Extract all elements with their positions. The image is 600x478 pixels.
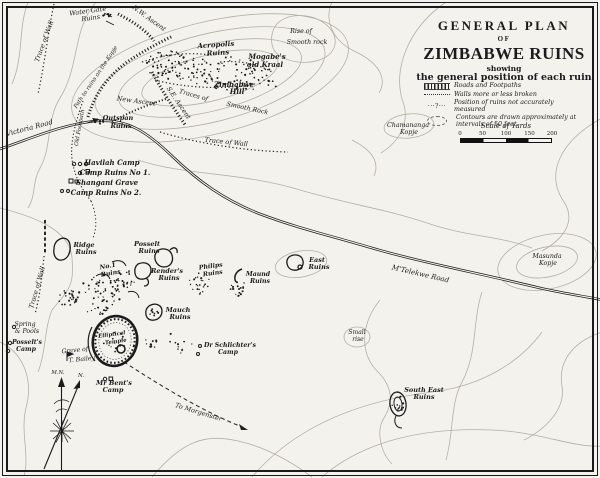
- map-label: Path to ruins on the Kopje: [72, 45, 119, 111]
- map-label: rise: [352, 336, 364, 343]
- map-label: Smooth Rock: [226, 101, 269, 117]
- map-label: Posselt's: [11, 339, 43, 346]
- compass-rose: [44, 377, 80, 470]
- map-label: Camp: [103, 386, 124, 394]
- mauch-ruins-shape: [146, 304, 162, 320]
- map-labels: Water GateRuinsN.W. AscentTrace of WallP…: [5, 3, 562, 423]
- map-label: To Morgenster: [174, 401, 224, 423]
- map-label: Dr Schlichter's: [203, 342, 256, 349]
- map-label: N.W. Ascent: [130, 3, 168, 33]
- map-label: Kopje: [399, 129, 418, 136]
- map-label: old Kraal: [247, 60, 284, 69]
- map-label: Spring: [14, 321, 35, 328]
- map-label: Small: [348, 329, 365, 336]
- compass-star-icon: [50, 420, 74, 443]
- map-label: Ruins: [75, 248, 97, 256]
- map-label: Camp: [16, 346, 36, 353]
- renders-ruins-shape: [135, 263, 151, 286]
- map-label: Ruins: [110, 122, 132, 130]
- camp-ruins-2-icon: [61, 190, 64, 193]
- ridge-ruins-shape: [54, 238, 70, 260]
- map-label: Smooth rock: [287, 39, 328, 46]
- schlichter-camp-icon: [199, 345, 202, 348]
- map-label: Maund: [245, 271, 271, 278]
- map-label: Kopje: [538, 260, 557, 267]
- map-label: Ruins: [205, 47, 229, 58]
- contour-lines: [0, 0, 600, 477]
- map-label: Camp: [218, 349, 238, 356]
- maund-ruins-shape: [235, 269, 242, 282]
- map-label: Rise of: [289, 28, 314, 35]
- morgenster-arrow-icon: [239, 424, 248, 430]
- map-label: Grave of: [61, 345, 90, 355]
- map-canvas: Water GateRuinsN.W. AscentTrace of WallP…: [0, 0, 600, 478]
- east-ruins-shape: [287, 255, 303, 270]
- havilah-camp-icon: [72, 162, 75, 165]
- map-label: Camp Ruins No 1.: [80, 168, 151, 177]
- map-label: & Pools: [15, 328, 39, 335]
- map-label: Ruins: [249, 278, 270, 285]
- roads: [0, 121, 600, 300]
- map-label: Ruins: [80, 13, 101, 24]
- map-label: Hill: [229, 87, 245, 96]
- map-label: Camp Ruins No 2.: [71, 188, 142, 197]
- map-label: N.: [77, 373, 84, 379]
- map-label: Masunda: [531, 253, 562, 260]
- map-label: Outspan: [103, 114, 134, 122]
- map-label: Ruins: [413, 393, 435, 401]
- true-north-arrow-icon: [74, 380, 81, 389]
- map-label: Ruins: [138, 247, 160, 255]
- south-east-ruins-shape: [388, 391, 407, 417]
- map-label: Ruins: [169, 313, 191, 321]
- magnetic-north-arrow-icon: [58, 377, 65, 387]
- map-label: Trace of Wall: [33, 20, 55, 64]
- map-label: Ruins: [308, 263, 330, 271]
- shangani-grave-icon: [69, 179, 73, 183]
- zimbabwe-ruins-map: Water GateRuinsN.W. AscentTrace of WallP…: [0, 0, 600, 478]
- map-label: Shangani Grave: [76, 178, 139, 187]
- map-label: Chamananga: [387, 122, 429, 129]
- map-label: Old Footpath: [74, 109, 86, 147]
- map-label: Victoria Road: [5, 118, 54, 138]
- map-label: Ruins: [158, 274, 180, 282]
- map-label: M.N.: [50, 370, 65, 376]
- victoria-mtelekwe-road: [0, 121, 600, 300]
- map-label: T. Bailey: [68, 355, 96, 365]
- map-label: Trace of Wall: [27, 265, 47, 309]
- morgenster-path: [124, 362, 242, 427]
- map-label: Havilah Camp: [83, 158, 139, 167]
